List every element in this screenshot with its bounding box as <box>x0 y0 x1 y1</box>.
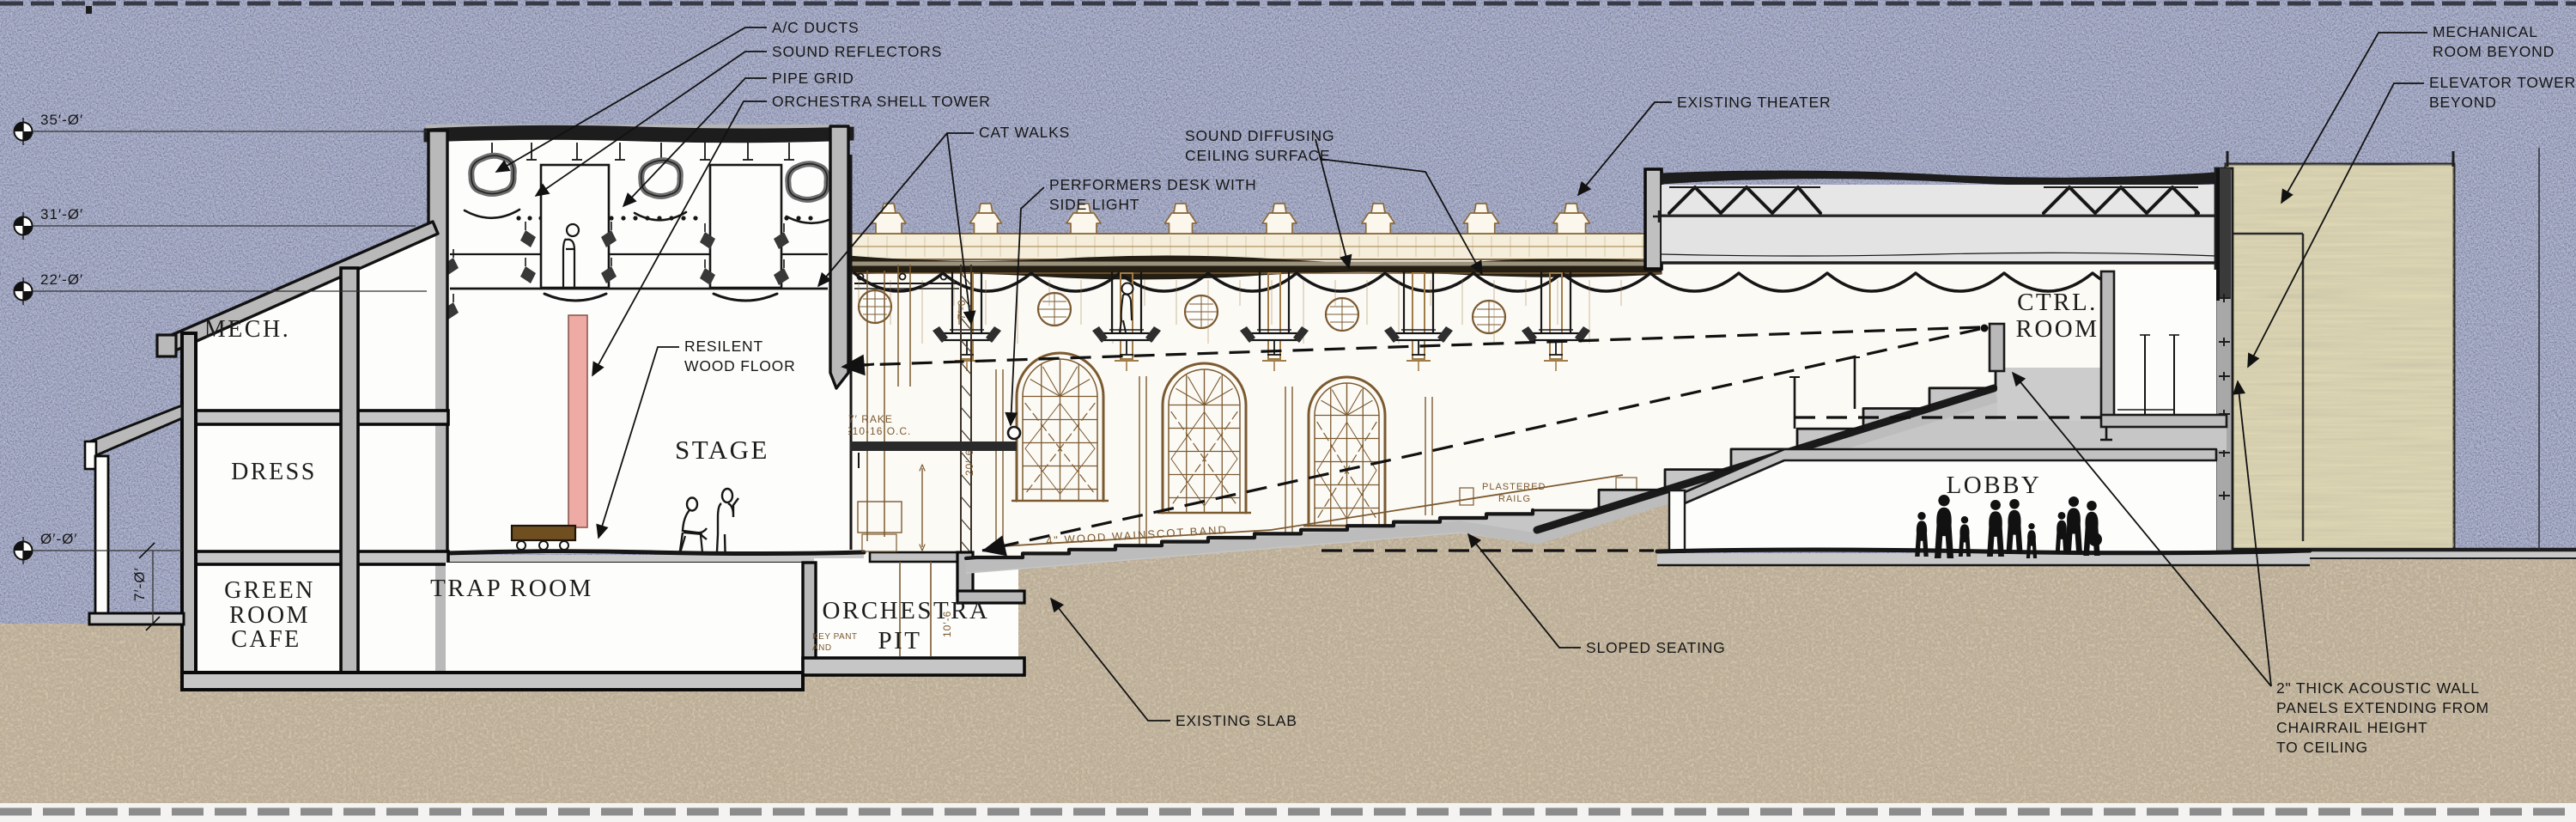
svg-text:AND: AND <box>812 643 832 653</box>
svg-text:DRESS: DRESS <box>231 459 317 485</box>
svg-text:CEILING SURFACE: CEILING SURFACE <box>1185 147 1331 164</box>
svg-text:MECHANICAL: MECHANICAL <box>2433 23 2538 40</box>
svg-text:KEY PANT: KEY PANT <box>812 632 858 642</box>
svg-text:CTRL.: CTRL. <box>2017 289 2098 316</box>
svg-text:PERFORMERS DESK WITH: PERFORMERS DESK WITH <box>1049 176 1257 193</box>
svg-text:EXISTING THEATER: EXISTING THEATER <box>1677 94 1831 111</box>
svg-text:STAGE: STAGE <box>675 435 769 465</box>
svg-text:ORCHESTRA SHELL TOWER: ORCHESTRA SHELL TOWER <box>772 93 991 110</box>
svg-text:ORCHESTRA: ORCHESTRA <box>823 597 990 624</box>
svg-text:CHAIRRAIL HEIGHT: CHAIRRAIL HEIGHT <box>2276 719 2427 736</box>
svg-text:CAT WALKS: CAT WALKS <box>979 124 1070 141</box>
svg-text:Ø′-Ø′: Ø′-Ø′ <box>40 531 77 547</box>
svg-text:SOUND DIFFUSING: SOUND DIFFUSING <box>1185 127 1334 144</box>
svg-text:SLOPED SEATING: SLOPED SEATING <box>1586 639 1726 656</box>
svg-text:20′-6: 20′-6 <box>963 449 975 476</box>
svg-text:LOBBY: LOBBY <box>1947 472 2042 499</box>
svg-text:ROOM: ROOM <box>229 602 310 629</box>
svg-text:WOOD FLOOR: WOOD FLOOR <box>684 357 796 374</box>
svg-text:PIT: PIT <box>878 627 922 655</box>
svg-text:EXISTING SLAB: EXISTING SLAB <box>1176 712 1297 729</box>
svg-text:A/C DUCTS: A/C DUCTS <box>772 19 860 36</box>
svg-text:SOUND REFLECTORS: SOUND REFLECTORS <box>772 43 942 60</box>
svg-text:RAILG: RAILG <box>1498 494 1531 504</box>
svg-text:31′-Ø′: 31′-Ø′ <box>40 206 83 222</box>
svg-text:35′-Ø′: 35′-Ø′ <box>40 112 83 128</box>
svg-text:PANELS EXTENDING FROM: PANELS EXTENDING FROM <box>2276 699 2489 716</box>
svg-text:TRAP ROOM: TRAP ROOM <box>430 575 593 602</box>
svg-text:7′ RAKE: 7′ RAKE <box>848 413 893 425</box>
svg-text:CAFE: CAFE <box>231 626 301 653</box>
svg-text:ROOM: ROOM <box>2015 315 2099 343</box>
svg-text:SIDE LIGHT: SIDE LIGHT <box>1049 196 1139 213</box>
svg-text:ELEVATOR TOWER: ELEVATOR TOWER <box>2429 74 2576 91</box>
svg-text:ROOM BEYOND: ROOM BEYOND <box>2433 43 2555 60</box>
svg-text:RESILENT: RESILENT <box>684 338 763 355</box>
svg-text:TO CEILING: TO CEILING <box>2276 739 2368 756</box>
svg-text:2" THICK ACOUSTIC WALL: 2" THICK ACOUSTIC WALL <box>2276 679 2480 697</box>
svg-text:22′-Ø′: 22′-Ø′ <box>40 271 83 288</box>
svg-text:210-16 O.C.: 210-16 O.C. <box>846 425 911 437</box>
svg-text:MECH.: MECH. <box>204 316 290 343</box>
svg-text:GREEN: GREEN <box>224 577 315 604</box>
svg-text:PLASTERED: PLASTERED <box>1482 482 1546 492</box>
svg-text:7′-0: 7′-0 <box>956 299 968 320</box>
svg-text:7′-Ø′: 7′-Ø′ <box>131 567 148 601</box>
svg-text:BEYOND: BEYOND <box>2429 94 2497 111</box>
svg-text:PIPE GRID: PIPE GRID <box>772 70 854 87</box>
